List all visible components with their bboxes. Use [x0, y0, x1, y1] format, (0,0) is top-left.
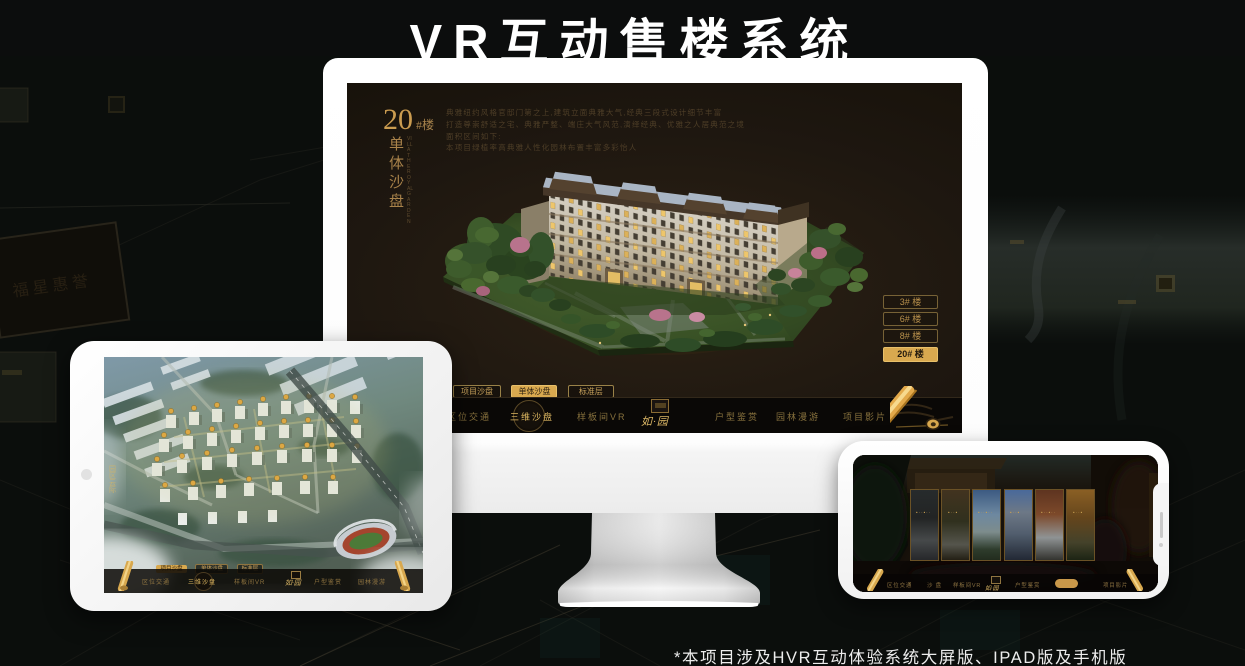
svg-text:园区云际: 园区云际 — [109, 465, 117, 494]
